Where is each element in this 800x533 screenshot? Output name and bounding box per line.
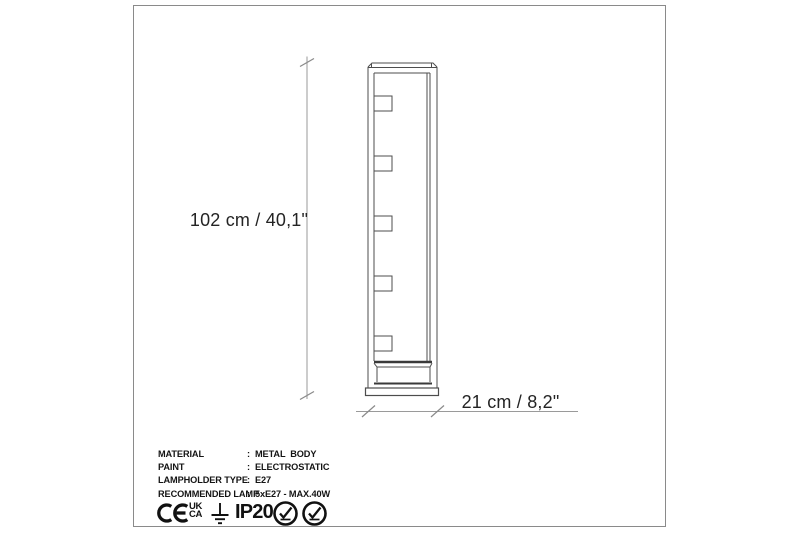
spec-label: PAINT <box>158 461 247 474</box>
spec-colon: : <box>247 488 255 501</box>
lamp-base <box>366 362 439 396</box>
width-dimension-label: 21 cm / 8,2" <box>440 392 581 413</box>
spec-label: LAMPHOLDER TYPE <box>158 474 247 487</box>
spec-label: MATERIAL <box>158 448 247 461</box>
spec-value: 5xE27 - MAX.40W <box>255 488 418 501</box>
ukca-line2: CA <box>189 511 202 519</box>
lampholder-tab <box>374 156 392 171</box>
diagram-page: 102 cm / 40,1" 21 cm / 8,2" MATERIAL : M… <box>0 0 800 533</box>
lampholder-tab <box>374 276 392 291</box>
lampholder-tab <box>374 216 392 231</box>
lampholder-tabs <box>374 96 392 351</box>
ukca-mark: UK CA <box>189 503 202 519</box>
spec-value: METAL BODY <box>255 448 418 461</box>
spec-value: ELECTROSTATIC <box>255 461 418 474</box>
spec-row-lampholder-type: LAMPHOLDER TYPE : E27 <box>158 474 418 487</box>
lampholder-tab <box>374 336 392 351</box>
earth-ground-icon <box>209 502 231 526</box>
ip-rating-label: IP20 <box>235 500 273 524</box>
height-dimension-label: 102 cm / 40,1" <box>179 210 319 231</box>
spec-row-material: MATERIAL : METAL BODY <box>158 448 418 461</box>
spec-label: RECOMMENDED LAMP <box>158 488 247 501</box>
spec-row-paint: PAINT : ELECTROSTATIC <box>158 461 418 474</box>
lamp-plinth <box>366 388 439 396</box>
check-badge-icon <box>301 500 328 527</box>
spec-colon: : <box>247 461 255 474</box>
lampholder-tab <box>374 96 392 111</box>
spec-row-recommended-lamp: RECOMMENDED LAMP : 5xE27 - MAX.40W <box>158 488 418 501</box>
spec-value: E27 <box>255 474 418 487</box>
spec-colon: : <box>247 474 255 487</box>
spec-colon: : <box>247 448 255 461</box>
ce-mark-icon <box>156 502 190 524</box>
spec-table: MATERIAL : METAL BODY PAINT : ELECTROSTA… <box>158 448 418 501</box>
check-badge-icon <box>272 500 299 527</box>
